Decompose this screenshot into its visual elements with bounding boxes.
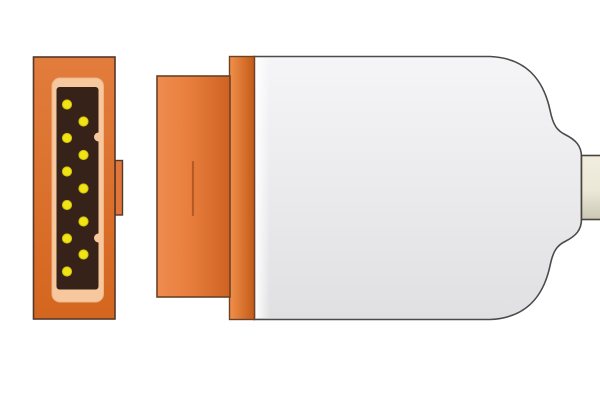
key-notch (94, 234, 103, 243)
connector-pin (79, 150, 88, 159)
connector-pin (79, 117, 88, 126)
connector-pin (62, 167, 71, 176)
housing-highlight (256, 58, 270, 318)
connector-pin (62, 200, 71, 209)
key-notch (94, 133, 103, 142)
pin-well (57, 87, 99, 290)
product-image (0, 0, 600, 400)
connector-pin (62, 234, 71, 243)
connector-pin (62, 100, 71, 109)
connector-pin (79, 217, 88, 226)
connector-key-tab (115, 161, 123, 216)
cable (582, 156, 600, 220)
connector-illustration (0, 0, 600, 400)
connector-pin (79, 250, 88, 259)
connector-pin (79, 184, 88, 193)
connector-pin (62, 133, 71, 142)
housing-front-strip (230, 57, 255, 320)
housing-shell (254, 57, 582, 320)
connector-pin (62, 267, 71, 276)
